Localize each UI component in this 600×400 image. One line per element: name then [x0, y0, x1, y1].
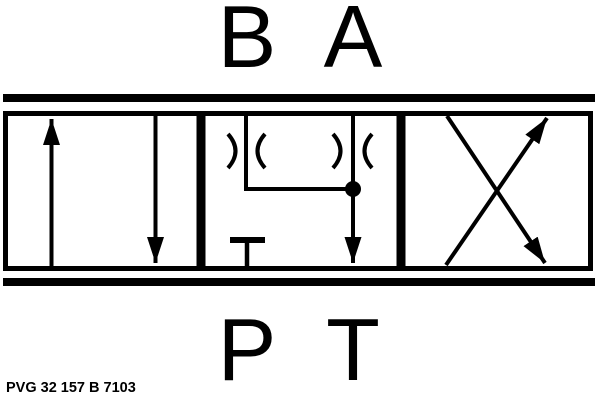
restrictor-a-right-arc-icon — [365, 134, 373, 168]
top-rail-line — [3, 94, 595, 102]
port-label-a: A — [324, 0, 383, 86]
position-center-box — [228, 116, 372, 268]
restrictor-a-left-arc-icon — [333, 134, 341, 168]
port-label-p: P — [218, 300, 277, 399]
schematic-canvas: B A — [0, 0, 600, 400]
position-right-box — [446, 116, 547, 265]
junction-dot-icon — [345, 181, 361, 197]
b-port-line — [246, 116, 353, 189]
part-number-text: PVG 32 157 B 7103 — [6, 380, 136, 396]
position-left-box — [52, 116, 156, 266]
port-label-b: B — [218, 0, 277, 86]
restrictor-b-left-arc-icon — [228, 134, 236, 168]
restrictor-b-right-arc-icon — [258, 134, 266, 168]
port-label-t: T — [326, 300, 380, 399]
bottom-rail-line — [3, 278, 595, 286]
valve-schematic: B A — [0, 0, 600, 400]
